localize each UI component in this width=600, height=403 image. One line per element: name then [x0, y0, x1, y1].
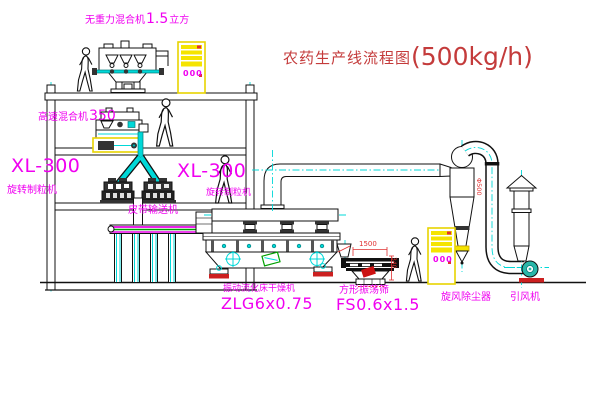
label-cyclone: 旋风除尘器: [441, 293, 491, 303]
hood-ports: [243, 221, 329, 233]
label-dryer-model: ZLG6x0.75: [221, 296, 313, 312]
dimension-sieve-height: 340: [390, 257, 396, 268]
label-sieve-model: FS0.6x1.5: [336, 297, 420, 313]
label-granulator-left-model: XL-300: [11, 157, 80, 176]
fluid-bed-dryer: [196, 209, 351, 279]
title-capacity: (500kg/h): [411, 44, 533, 69]
dimension-sieve-width: 1500: [359, 241, 377, 248]
cabinet-2-display: 000: [433, 256, 453, 264]
process-flow-diagram: 农药生产线流程图 (500kg/h) 无重力混合机 1.5 立方 高速混合机 3…: [0, 0, 600, 403]
fan-base: [519, 278, 544, 283]
stack-cap: [507, 176, 536, 189]
indicator-light: [197, 46, 201, 49]
stack-flange: [512, 209, 531, 213]
indicator-light: [447, 232, 451, 235]
label-granulator-left-name: 旋转制粒机: [7, 186, 57, 196]
label-high-speed-mixer: 高速混合机 350: [38, 109, 116, 123]
worker-figure: [406, 238, 421, 281]
cabinet-1-display: 000: [183, 70, 203, 78]
belt-conveyor: [108, 225, 204, 283]
dryer-discharge-chute: [337, 240, 351, 258]
label-granulator-right-name: 旋转制粒机: [206, 189, 251, 198]
pipe-flange: [485, 162, 500, 166]
title-text: 农药生产线流程图: [283, 51, 411, 66]
exhaust-duct: [252, 150, 451, 213]
diagram-title: 农药生产线流程图 (500kg/h): [283, 44, 533, 69]
discharge-pipe: [138, 132, 143, 158]
control-cabinet-1: [178, 42, 205, 93]
label-fan: 引风机: [510, 293, 540, 303]
duct-reducer: [440, 164, 451, 177]
motor: [98, 141, 114, 150]
worker-figure: [77, 48, 92, 91]
label-dryer-name: 振动流化床干燥机: [223, 285, 295, 294]
label-no-gravity-mixer: 无重力混合机 1.5 立方: [85, 12, 189, 26]
no-gravity-mixer: [92, 41, 168, 93]
label-granulator-right-model: XL-300: [177, 162, 246, 181]
label-belt-conveyor: 皮带输送机: [128, 206, 178, 216]
dimension-cyclone-diameter: Φ500: [476, 178, 483, 196]
conveyor-legs: [115, 233, 176, 283]
dryer-hood: [212, 209, 338, 221]
worker-figure: [157, 99, 173, 146]
